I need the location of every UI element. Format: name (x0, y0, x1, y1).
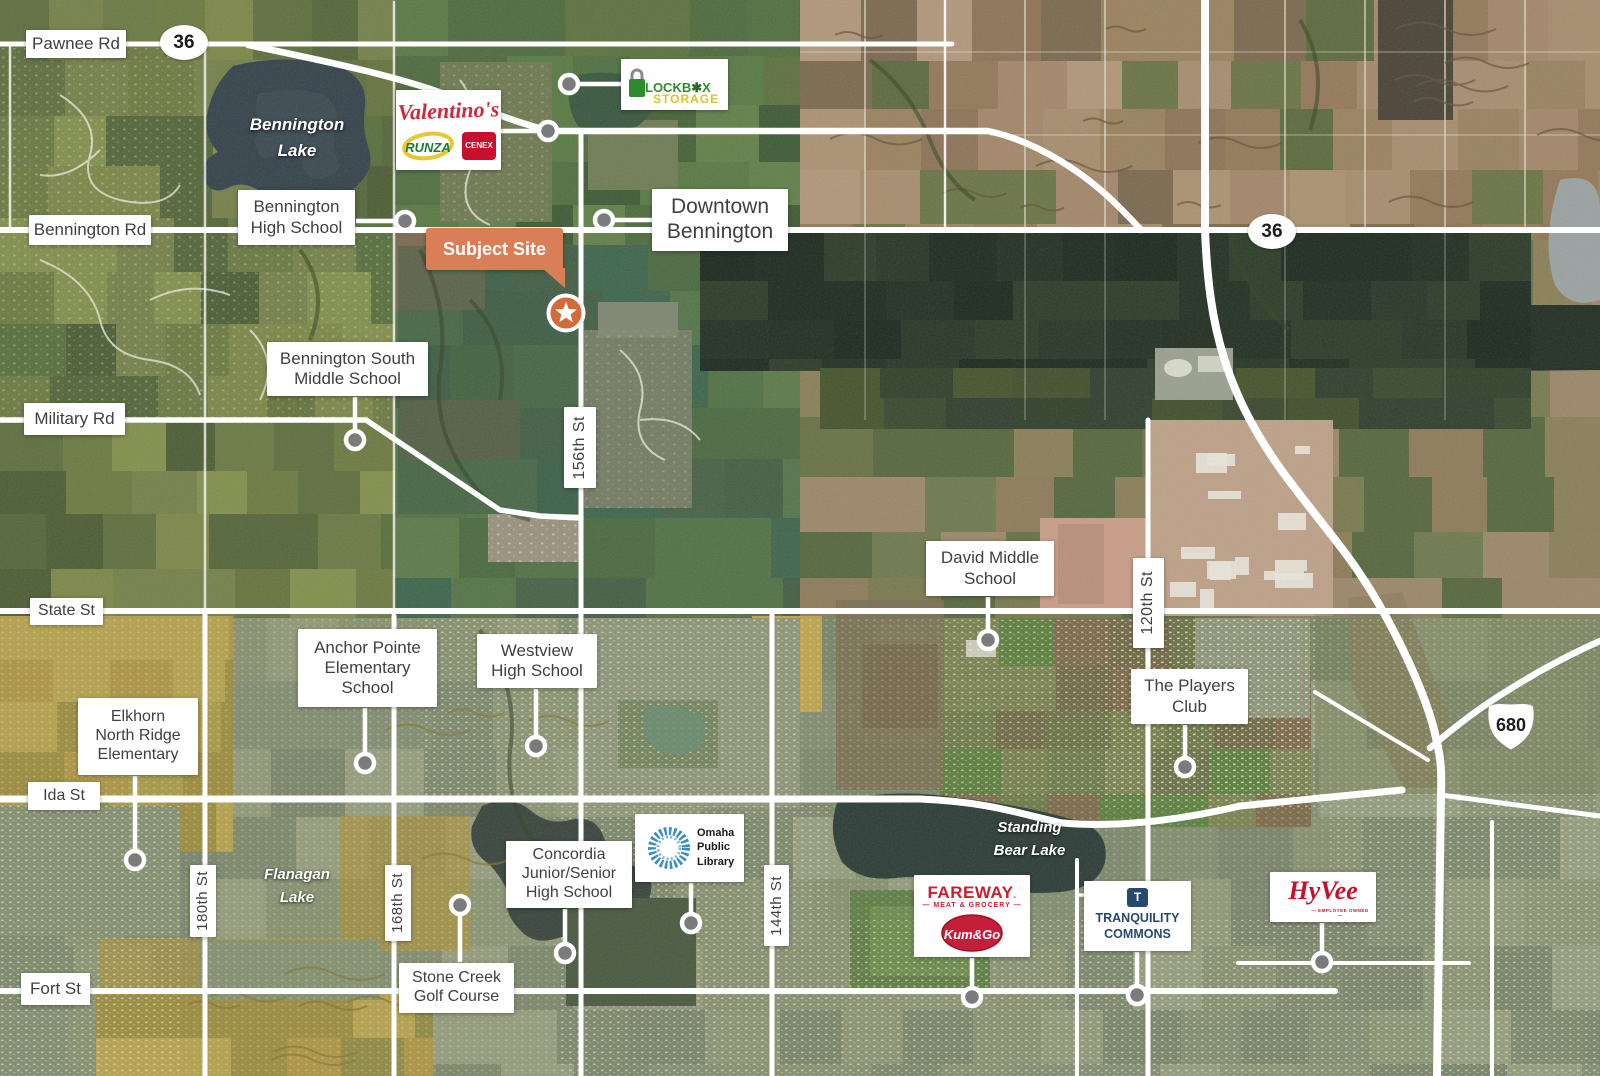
svg-text:680: 680 (1496, 715, 1526, 735)
svg-text:Kum&Go: Kum&Go (944, 927, 1000, 942)
svg-text:RUNZA: RUNZA (405, 140, 451, 155)
svg-text:STORAGE: STORAGE (653, 92, 719, 105)
